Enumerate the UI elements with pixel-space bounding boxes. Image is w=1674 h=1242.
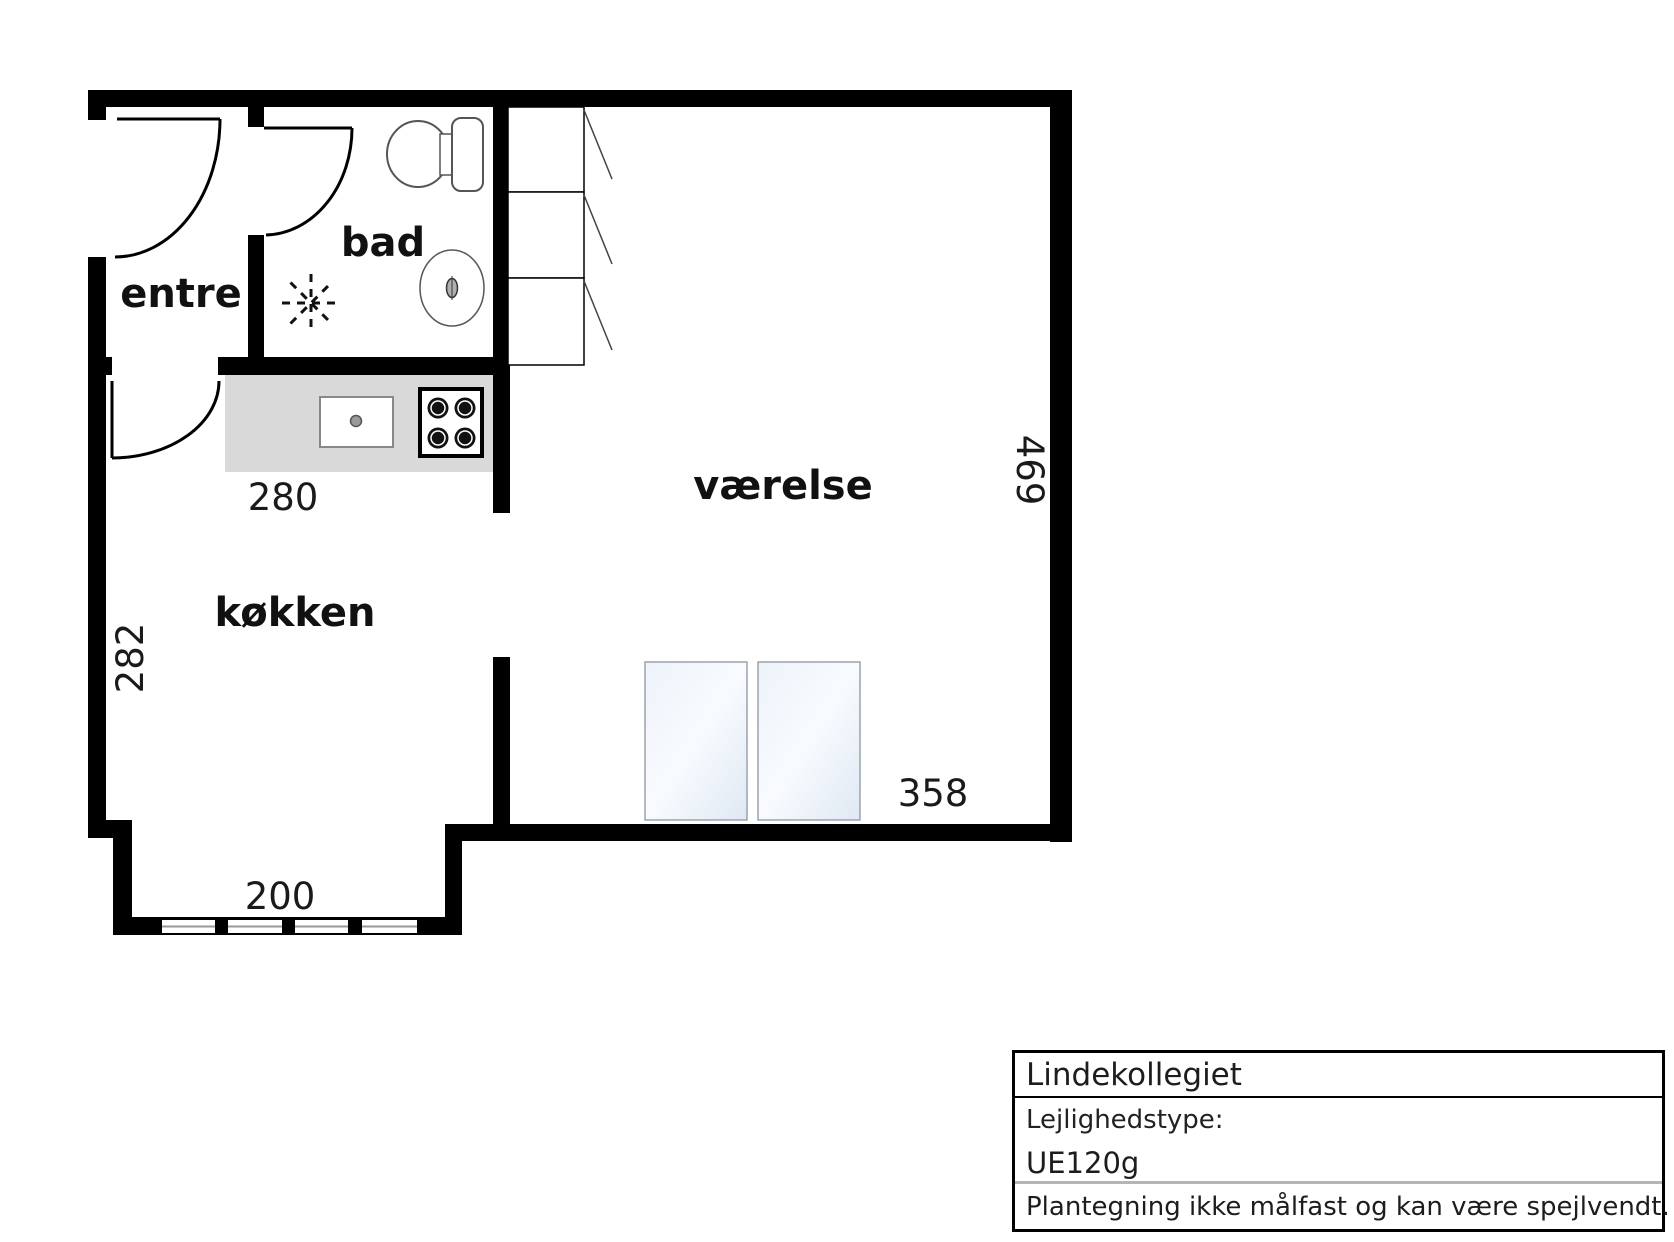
dimension-bed-width: 358 (898, 772, 969, 815)
kitchen-counter (225, 375, 493, 472)
room-label-entre: entre (120, 271, 242, 317)
wall-top (88, 90, 1072, 107)
bed-icon (645, 662, 747, 820)
apartment-type-label: Lejlighedstype: (1026, 1098, 1662, 1135)
dimension-window-width: 200 (245, 875, 316, 918)
room-label-koekken: køkken (215, 590, 376, 636)
project-name: Lindekollegiet (1015, 1053, 1662, 1098)
wall-bay-right (445, 824, 462, 935)
dimension-counter-width: 280 (248, 476, 319, 519)
window-icon (362, 920, 417, 933)
wall-south-of-entre-bad (218, 357, 510, 375)
room-label-vaerelse: værelse (693, 463, 873, 509)
window-icon (162, 920, 215, 933)
dimension-right-wall-height: 469 (1008, 435, 1051, 506)
wall-entre-bad-main (248, 235, 264, 357)
beds (645, 662, 860, 820)
wall-cap-left-of-kitchen-door (106, 357, 112, 375)
room-label-bad: bad (341, 220, 425, 266)
window-icon (228, 920, 282, 933)
door-arc-icon-bad (264, 128, 352, 235)
kitchen-sink-icon (320, 397, 393, 447)
apartment-type-value: UE120g (1026, 1135, 1662, 1180)
bed-icon (758, 662, 860, 820)
shower-icon (282, 274, 340, 332)
window-icon (295, 920, 348, 933)
wall-left-main (88, 257, 106, 838)
stove-icon (420, 389, 482, 456)
wall-vaerelse-bottom (447, 824, 1072, 841)
disclaimer-text: Plantegning ikke målfast og kan være spe… (1015, 1184, 1662, 1227)
title-block: Lindekollegiet Lejlighedstype: UE120g Pl… (1012, 1050, 1665, 1232)
floorplan-page: entre bad værelse køkken 280 200 358 282… (0, 0, 1674, 1242)
toilet-icon (387, 118, 483, 191)
dimension-left-wall-height: 282 (109, 623, 152, 694)
wall-partition-lower (493, 657, 510, 824)
bathroom-sink-icon (420, 250, 484, 326)
door-arc-icon-entry (115, 119, 220, 257)
wall-left-upper (88, 90, 106, 120)
door-arc-icon-koekken (112, 381, 219, 458)
apartment-type-section: Lejlighedstype: UE120g (1015, 1098, 1662, 1184)
wardrobe-icon (508, 107, 612, 365)
wall-entre-bad-top (248, 103, 264, 127)
wall-right (1050, 90, 1072, 842)
